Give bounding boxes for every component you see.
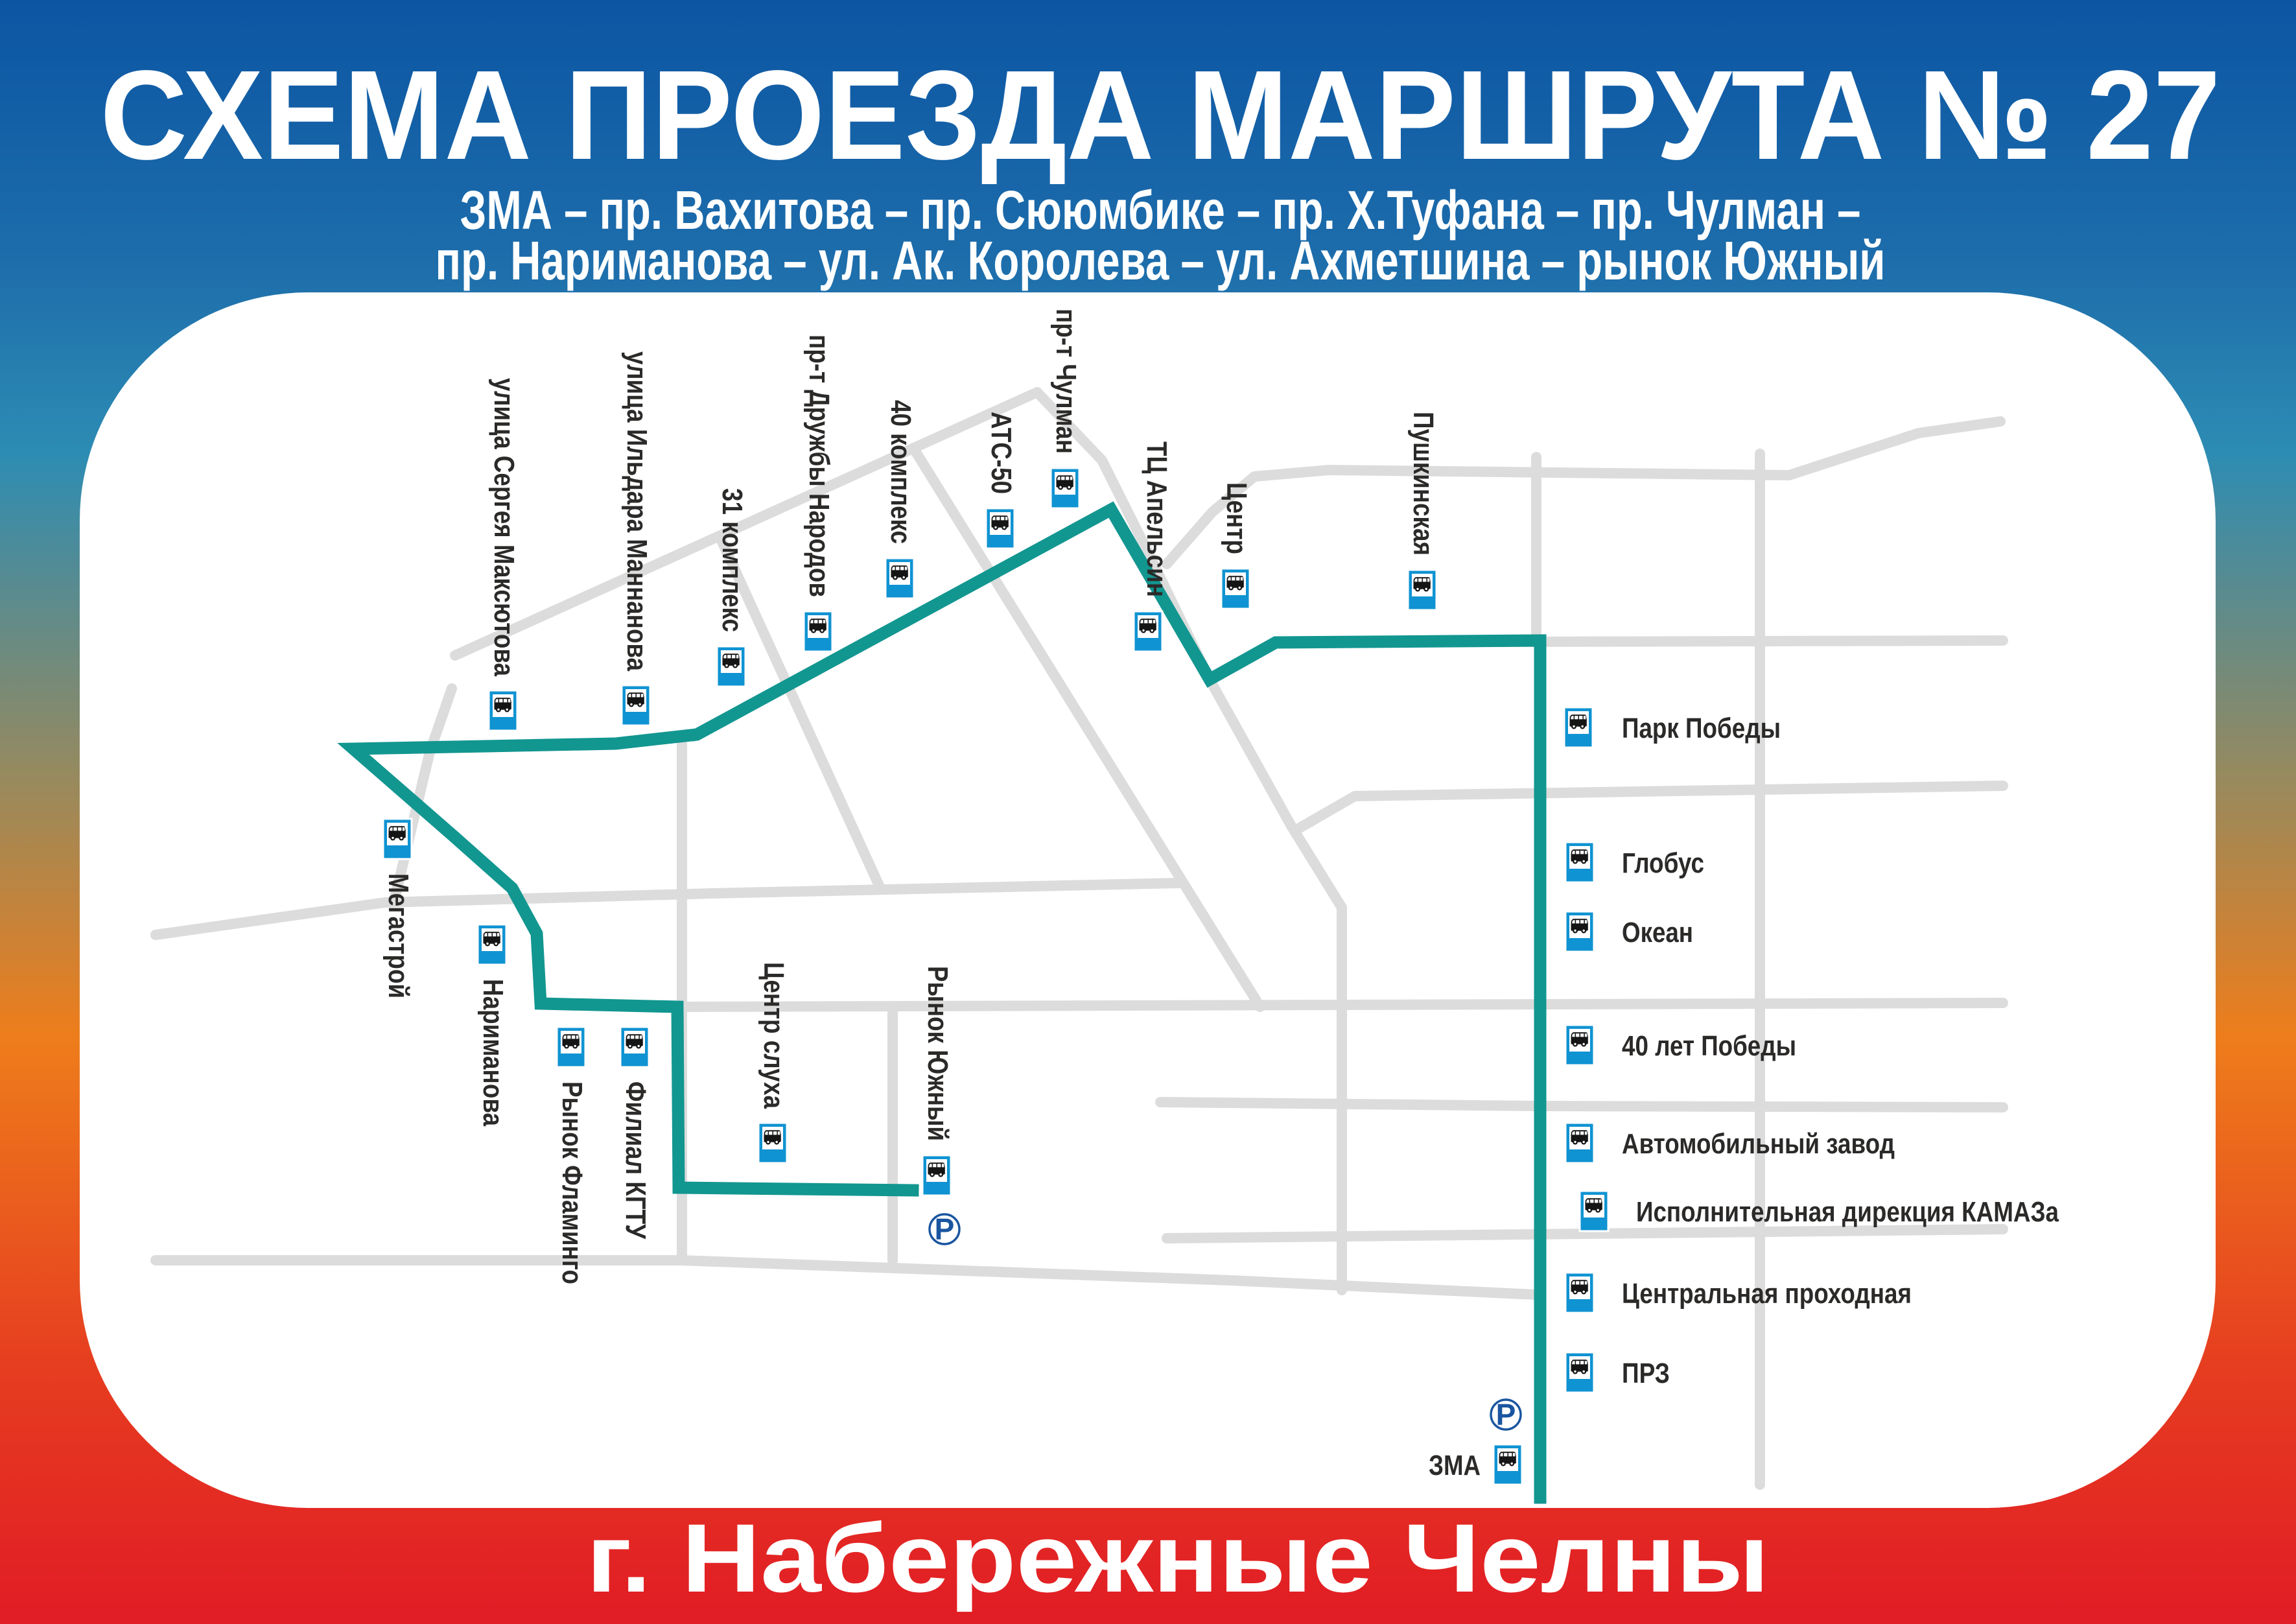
svg-text:АТС-50: АТС-50 — [985, 412, 1017, 494]
svg-text:пр-т Чулман: пр-т Чулман — [1050, 309, 1082, 454]
svg-text:ЗМА: ЗМА — [1429, 1450, 1481, 1481]
svg-text:Океан: Океан — [1622, 917, 1693, 948]
svg-text:Мегастрой: Мегастрой — [382, 873, 414, 998]
svg-text:Глобус: Глобус — [1622, 847, 1704, 879]
svg-text:Центр слуха: Центр слуха — [758, 962, 790, 1109]
svg-text:Рынок Южный: Рынок Южный — [922, 966, 954, 1141]
svg-text:пр-т Дружбы Народов: пр-т Дружбы Народов — [803, 335, 835, 597]
svg-text:Пушкинская: Пушкинская — [1407, 412, 1439, 556]
svg-text:ТЦ Апельсин: ТЦ Апельсин — [1141, 441, 1173, 597]
svg-text:Центр: Центр — [1221, 482, 1252, 554]
svg-text:пр. Нариманова – ул. Ак. Корол: пр. Нариманова – ул. Ак. Королева – ул. … — [436, 230, 1886, 291]
svg-text:40 лет Победы: 40 лет Победы — [1622, 1030, 1796, 1062]
svg-text:Автомобильный завод: Автомобильный завод — [1622, 1128, 1895, 1160]
svg-text:улица Сергея Максютова: улица Сергея Максютова — [488, 378, 520, 676]
svg-text:Центральная проходная: Центральная проходная — [1622, 1278, 1912, 1310]
svg-text:Нариманова: Нариманова — [477, 979, 509, 1126]
svg-text:Филиал КГТУ: Филиал КГТУ — [620, 1081, 651, 1240]
svg-text:Исполнительная дирекция КАМАЗа: Исполнительная дирекция КАМАЗа — [1636, 1196, 2059, 1228]
svg-text:31 комплекс: 31 комплекс — [716, 488, 748, 632]
svg-text:ПРЗ: ПРЗ — [1622, 1358, 1670, 1389]
svg-text:Рынок Фламинго: Рынок Фламинго — [556, 1081, 588, 1284]
svg-text:г. Набережные Челны: г. Набережные Челны — [587, 1503, 1770, 1612]
svg-text:40 комплекс: 40 комплекс — [885, 400, 917, 544]
svg-text:улица Ильдара Маннанова: улица Ильдара Маннанова — [621, 351, 653, 671]
svg-text:Парк Победы: Парк Победы — [1622, 712, 1781, 744]
svg-text:СХЕМА ПРОЕЗДА МАРШРУТА № 27: СХЕМА ПРОЕЗДА МАРШРУТА № 27 — [100, 44, 2221, 186]
